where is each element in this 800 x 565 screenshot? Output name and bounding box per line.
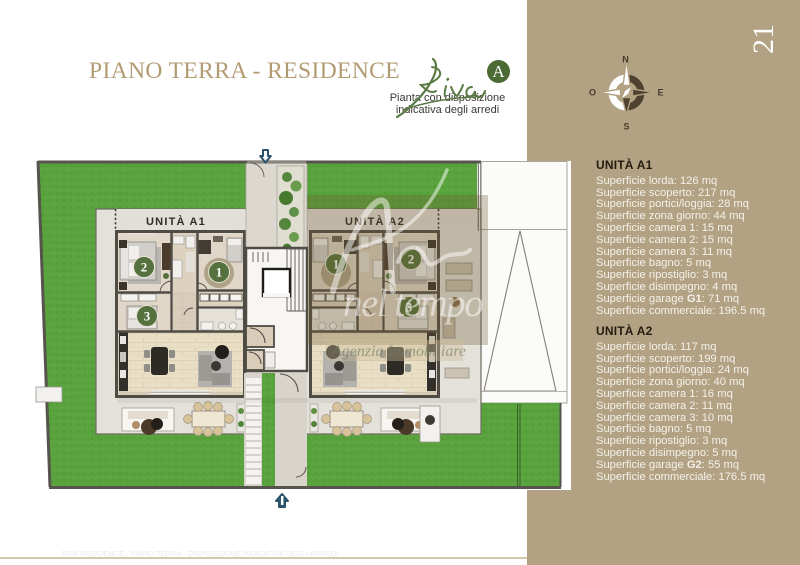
svg-text:2: 2 <box>141 260 148 275</box>
svg-text:Agenzia Immobiliare: Agenzia Immobiliare <box>331 343 466 360</box>
svg-text:1: 1 <box>216 265 223 280</box>
svg-text:nel tempo: nel tempo <box>343 282 483 325</box>
svg-text:3: 3 <box>144 309 151 324</box>
svg-text:RIVA RESIDENCE · PIANO TERRA: RIVA RESIDENCE · PIANO TERRA · DISPOSIZI… <box>62 549 339 558</box>
svg-text:UNITÀ A1: UNITÀ A1 <box>146 215 206 228</box>
